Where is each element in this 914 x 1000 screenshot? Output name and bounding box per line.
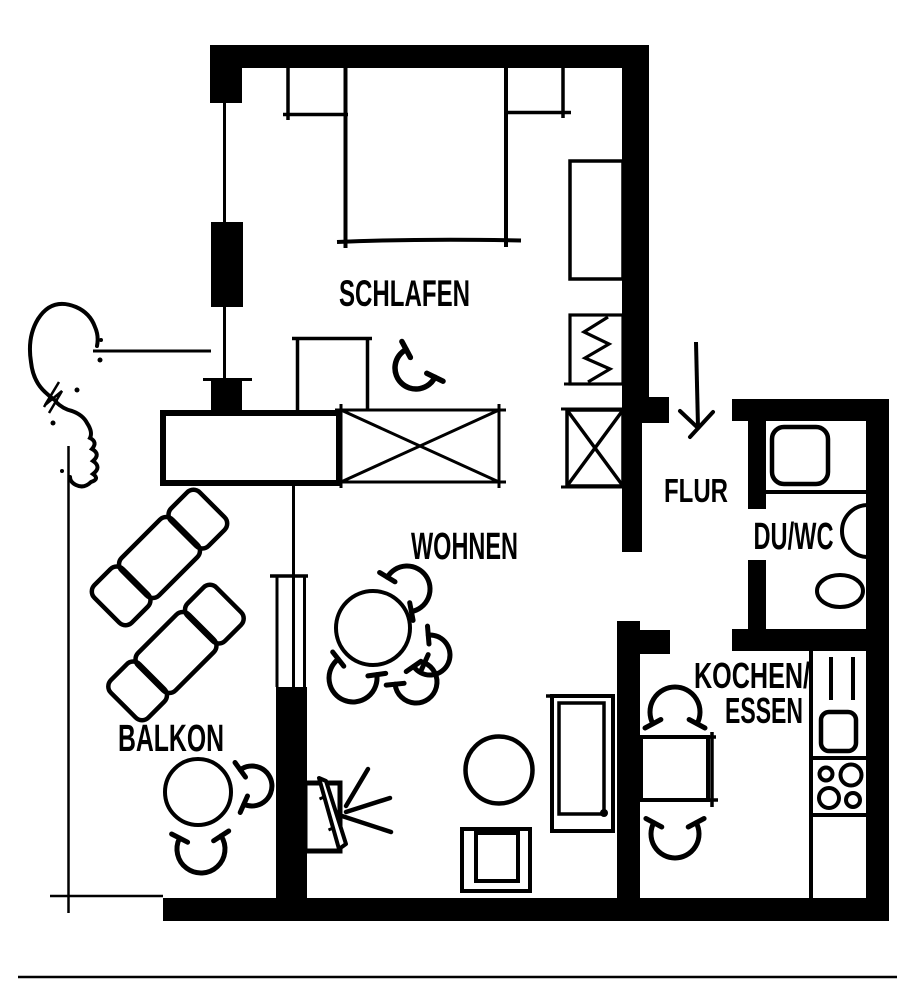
svg-text:BALKON: BALKON	[118, 718, 224, 760]
svg-text:FLUR: FLUR	[664, 472, 728, 509]
svg-text:ESSEN: ESSEN	[725, 690, 803, 731]
svg-text:WOHNEN: WOHNEN	[411, 526, 518, 568]
svg-text:DU/WC: DU/WC	[754, 516, 834, 558]
svg-text:SCHLAFEN: SCHLAFEN	[339, 273, 470, 314]
